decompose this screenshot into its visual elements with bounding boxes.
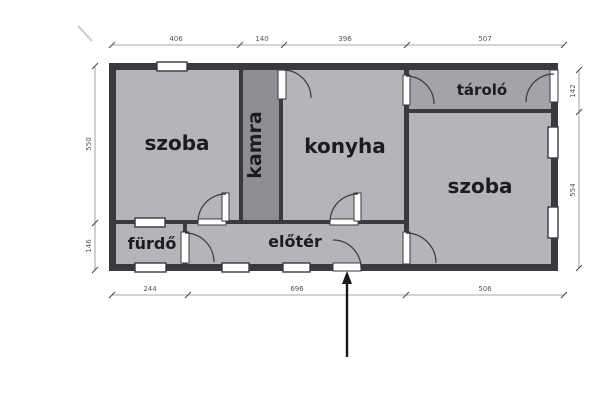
label-eloter: előtér xyxy=(268,232,322,251)
entrance-arrow xyxy=(342,271,352,357)
door-gap-furdo xyxy=(181,232,189,263)
window-furdo-top xyxy=(135,218,165,227)
dim-top-1: 406 xyxy=(169,35,183,43)
dim-top-4: 507 xyxy=(478,35,491,43)
dimension-chain-right: 142 554 xyxy=(569,67,582,271)
dimension-chain-left: 550 146 xyxy=(85,63,98,273)
label-szoba-left: szoba xyxy=(144,131,209,155)
dim-bottom-1: 244 xyxy=(143,285,157,293)
door-gap-kamra xyxy=(278,70,286,99)
floorplan-svg: szoba kamra konyha tároló szoba fürdő el… xyxy=(0,0,600,412)
dim-top-2: 140 xyxy=(255,35,268,43)
door-gap-szoba-right xyxy=(403,232,410,264)
window-eloter-bottom-1 xyxy=(222,263,249,272)
window-szoba-left-top xyxy=(157,62,187,71)
dim-bottom-3: 506 xyxy=(478,285,492,293)
label-konyha: konyha xyxy=(304,134,386,158)
door-leaf-szoba-left xyxy=(222,193,229,221)
label-szoba-right: szoba xyxy=(447,174,512,198)
window-szoba-right-2 xyxy=(548,207,558,238)
dimension-chain-bottom: 244 696 506 xyxy=(109,285,567,298)
floorplan-page: szoba kamra konyha tároló szoba fürdő el… xyxy=(0,0,600,412)
label-tarolo: tároló xyxy=(457,81,507,99)
window-furdo-bottom xyxy=(135,263,166,272)
dim-bottom-2: 696 xyxy=(290,285,304,293)
dim-left-2: 146 xyxy=(85,239,93,253)
door-gap-tarolo-left xyxy=(403,75,410,105)
window-eloter-bottom-2 xyxy=(283,263,310,272)
window-szoba-right-1 xyxy=(548,127,558,158)
dimension-chain-top: 406 140 396 507 xyxy=(109,35,567,48)
corner-stray-mark xyxy=(78,26,92,41)
dim-top-3: 396 xyxy=(338,35,352,43)
dim-right-2: 554 xyxy=(569,183,577,197)
label-kamra: kamra xyxy=(244,111,266,178)
door-gap-entrance xyxy=(333,263,361,271)
door-gap-tarolo-right xyxy=(550,70,558,102)
dim-left-1: 550 xyxy=(85,137,93,150)
dim-right-1: 142 xyxy=(569,84,577,97)
label-furdo: fürdő xyxy=(128,234,177,253)
door-leaf-konyha xyxy=(354,193,361,221)
